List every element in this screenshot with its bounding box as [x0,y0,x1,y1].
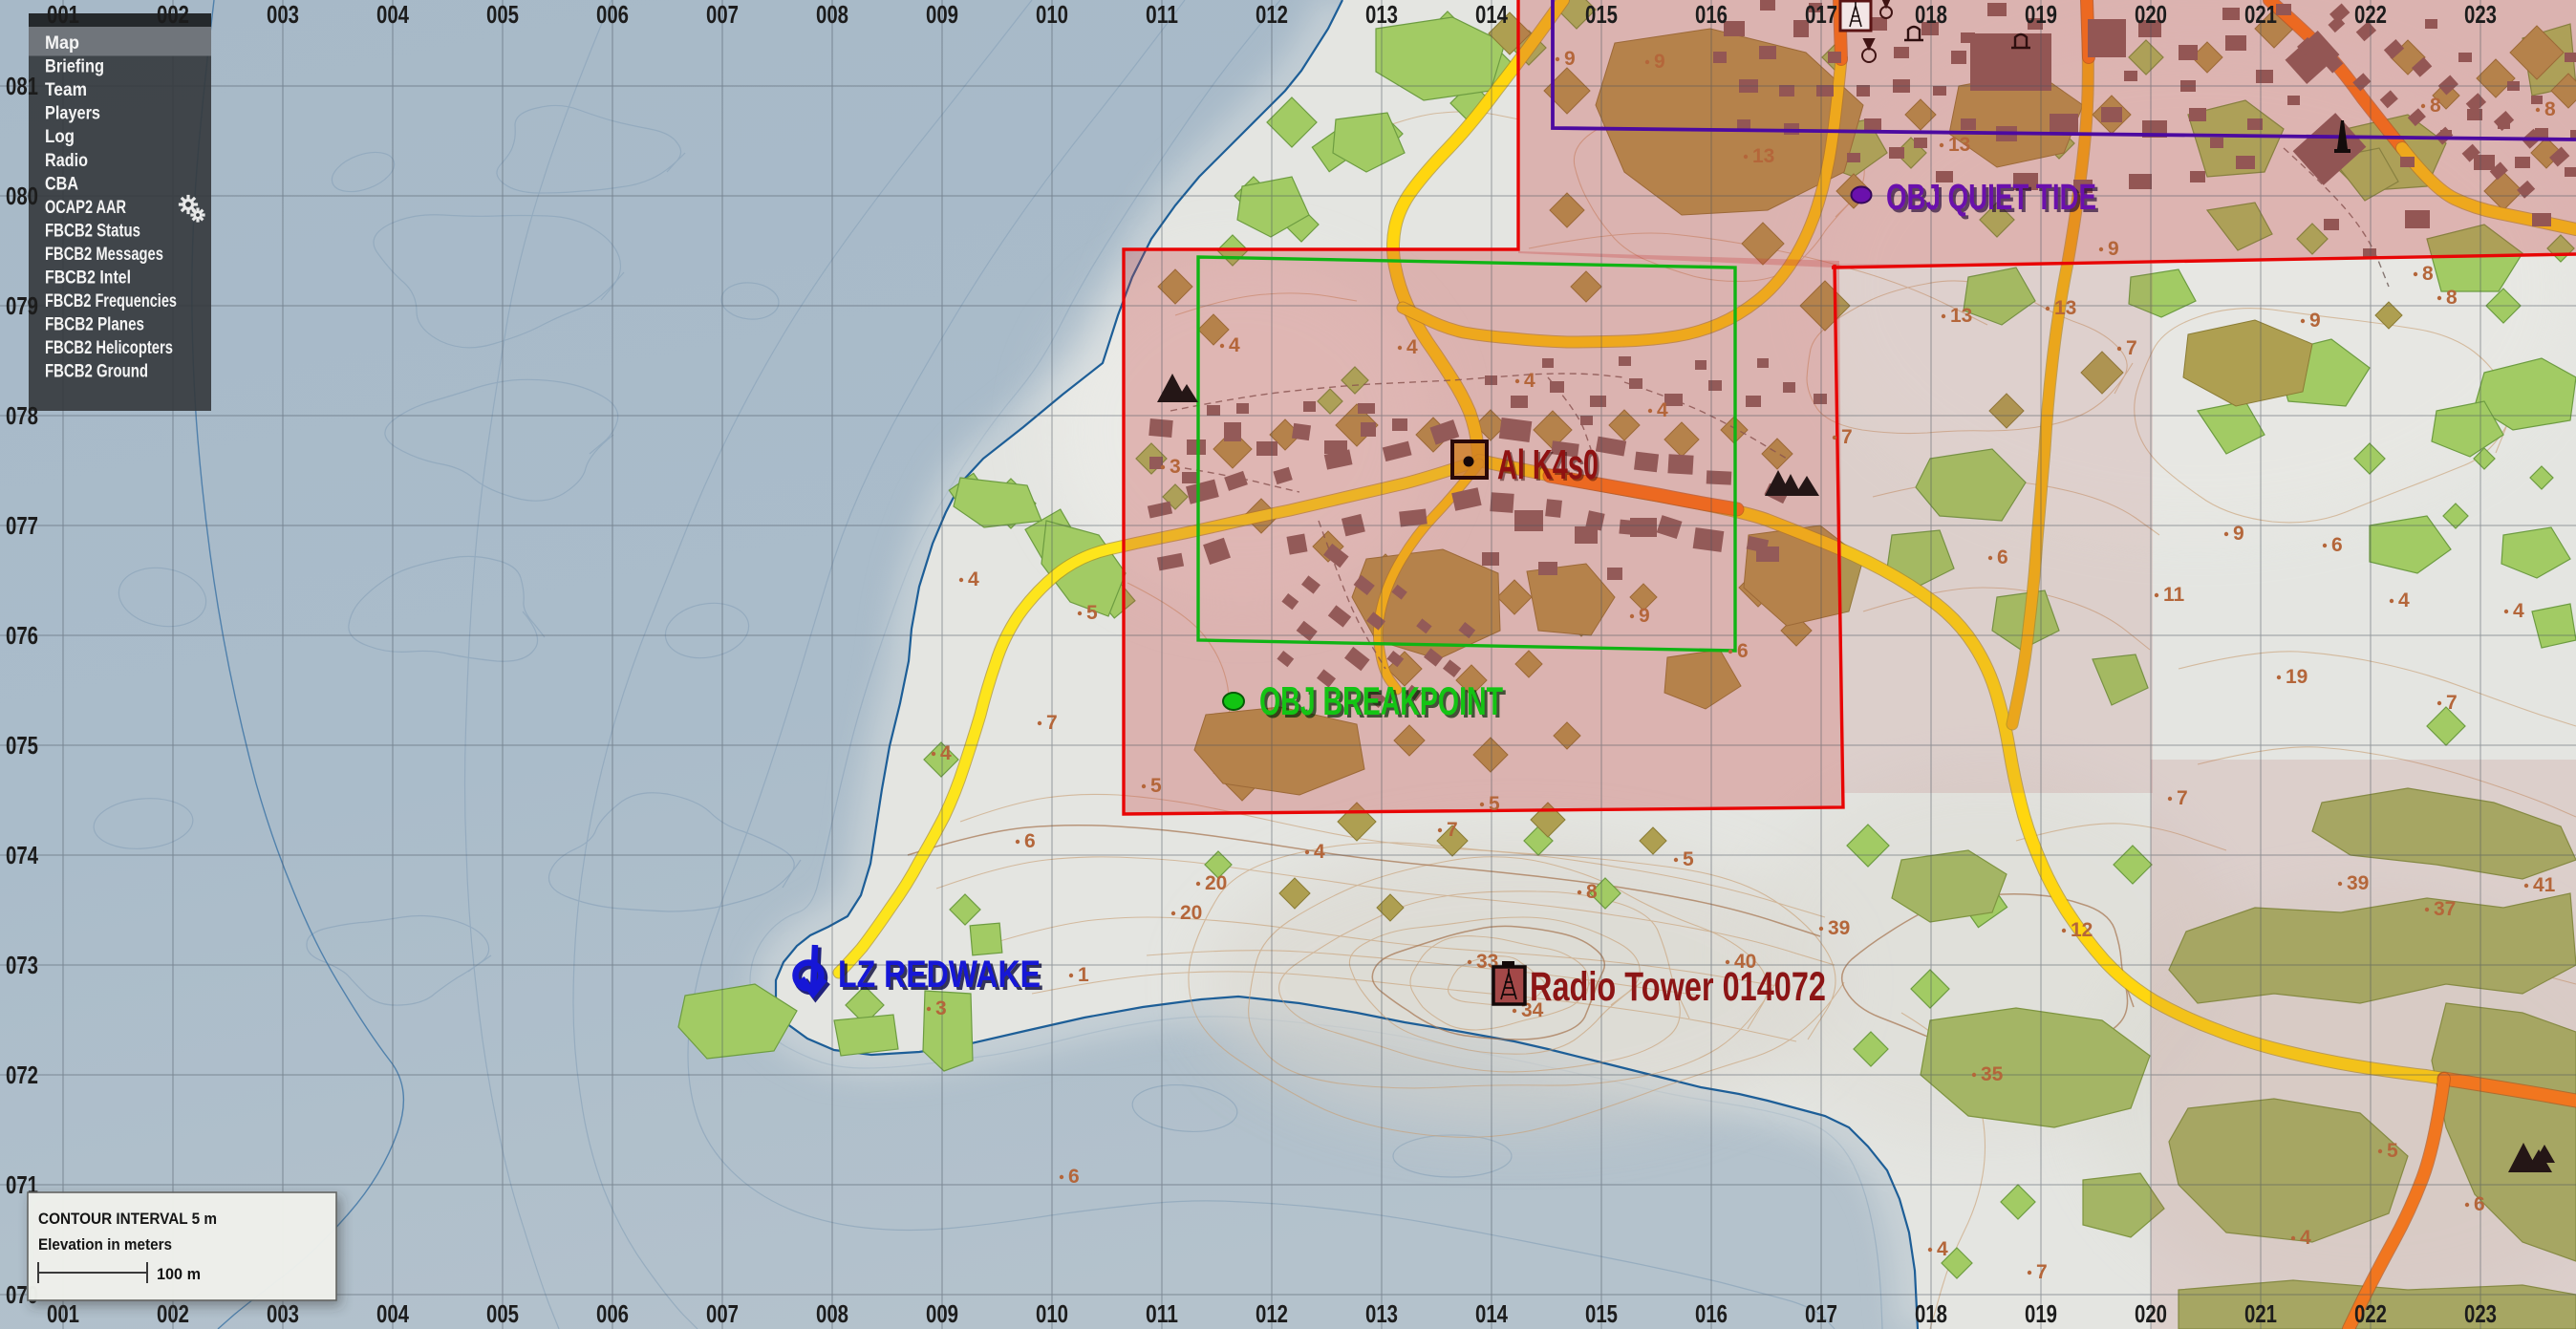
svg-text:Players: Players [45,103,100,124]
svg-text:010: 010 [1036,0,1068,29]
svg-text:004: 004 [376,1299,409,1328]
svg-text:019: 019 [2025,0,2057,29]
svg-text:6: 6 [1737,640,1749,662]
svg-text:022: 022 [2354,1299,2387,1328]
svg-text:OCAP2 AAR: OCAP2 AAR [45,197,126,218]
svg-text:8: 8 [1586,881,1598,903]
svg-text:5: 5 [1086,602,1098,624]
svg-text:13: 13 [1950,305,1972,327]
svg-text:017: 017 [1805,0,1837,29]
svg-text:6: 6 [1024,830,1036,852]
svg-text:019: 019 [2025,1299,2057,1328]
svg-text:007: 007 [706,0,739,29]
svg-text:008: 008 [816,1299,848,1328]
svg-text:39: 39 [1828,917,1850,939]
svg-text:073: 073 [6,951,38,979]
svg-text:4: 4 [2300,1227,2311,1249]
svg-text:012: 012 [1256,1299,1288,1328]
svg-text:6: 6 [2331,534,2343,556]
svg-text:8: 8 [2430,95,2441,117]
svg-text:8: 8 [2422,263,2434,285]
svg-text:011: 011 [1146,1299,1178,1328]
svg-text:Team: Team [45,79,87,100]
svg-text:7: 7 [1447,819,1458,841]
svg-text:20: 20 [1180,902,1202,924]
svg-text:077: 077 [6,511,38,540]
svg-text:FBCB2 Status: FBCB2 Status [45,220,140,241]
svg-text:076: 076 [6,621,38,650]
svg-text:016: 016 [1695,0,1728,29]
svg-text:39: 39 [2347,872,2369,894]
svg-text:021: 021 [2244,0,2277,29]
svg-text:010: 010 [1036,1299,1068,1328]
svg-text:009: 009 [926,1299,958,1328]
svg-text:012: 012 [1256,0,1288,29]
svg-text:4: 4 [2513,600,2524,622]
svg-text:006: 006 [596,0,629,29]
svg-text:41: 41 [2533,874,2556,896]
svg-text:Log: Log [45,126,75,147]
svg-text:003: 003 [267,1299,299,1328]
svg-text:13: 13 [1752,145,1774,167]
svg-text:018: 018 [1915,1299,1947,1328]
svg-text:080: 080 [6,182,38,210]
svg-text:018: 018 [1915,0,1947,29]
svg-text:4: 4 [1314,841,1325,863]
svg-text:35: 35 [1981,1063,2004,1085]
svg-text:Al K4s0: Al K4s0 [1497,441,1599,488]
svg-text:008: 008 [816,0,848,29]
svg-text:FBCB2 Intel: FBCB2 Intel [45,268,131,289]
svg-text:4: 4 [1937,1238,1948,1260]
svg-text:020: 020 [2135,0,2167,29]
svg-text:6: 6 [1997,547,2008,568]
svg-text:Radio: Radio [45,150,88,171]
svg-text:001: 001 [47,1299,79,1328]
svg-text:5: 5 [2387,1140,2398,1162]
svg-text:9: 9 [1639,605,1650,627]
svg-text:4: 4 [940,742,952,764]
svg-text:6: 6 [2474,1193,2485,1215]
svg-text:9: 9 [1564,48,1576,70]
svg-text:007: 007 [706,1299,739,1328]
svg-text:Briefing: Briefing [45,56,104,77]
svg-text:4: 4 [1229,334,1240,356]
svg-text:6: 6 [1068,1166,1080,1188]
svg-text:081: 081 [6,72,38,100]
svg-text:078: 078 [6,401,38,430]
svg-text:9: 9 [2309,310,2321,332]
svg-text:12: 12 [2071,919,2093,941]
svg-text:4: 4 [1524,370,1535,392]
svg-text:013: 013 [1365,0,1398,29]
svg-text:011: 011 [1146,0,1178,29]
svg-text:20: 20 [1205,872,1227,894]
svg-text:FBCB2 Planes: FBCB2 Planes [45,314,144,335]
svg-text:7: 7 [2126,337,2137,359]
svg-text:9: 9 [2108,238,2119,260]
svg-text:OBJ BREAKPOINT: OBJ BREAKPOINT [1259,678,1503,723]
svg-text:Map: Map [45,32,79,54]
svg-text:FBCB2 Ground: FBCB2 Ground [45,361,148,382]
svg-text:4: 4 [968,568,979,590]
svg-text:7: 7 [1841,426,1853,448]
svg-text:014: 014 [1475,0,1508,29]
svg-text:3: 3 [935,997,947,1019]
svg-text:014: 014 [1475,1299,1508,1328]
svg-text:8: 8 [2544,98,2556,120]
svg-text:015: 015 [1585,1299,1618,1328]
svg-text:OBJ QUIET TIDE: OBJ QUIET TIDE [1886,178,2096,218]
svg-text:079: 079 [6,291,38,320]
svg-text:Radio Tower 014072: Radio Tower 014072 [1530,964,1826,1010]
svg-text:13: 13 [2054,297,2076,319]
svg-text:002: 002 [157,0,189,29]
svg-text:5: 5 [1683,848,1694,870]
svg-text:022: 022 [2354,0,2387,29]
svg-text:5: 5 [1150,775,1162,797]
svg-text:19: 19 [2286,666,2308,688]
svg-text:075: 075 [6,731,38,760]
svg-text:003: 003 [267,0,299,29]
svg-text:004: 004 [376,0,409,29]
svg-text:072: 072 [6,1061,38,1089]
svg-text:8: 8 [2446,287,2458,309]
svg-text:7: 7 [2446,692,2458,714]
svg-text:9: 9 [1654,51,1665,73]
svg-text:002: 002 [157,1299,189,1328]
svg-text:13: 13 [1948,134,1970,156]
svg-text:Elevation in meters: Elevation in meters [38,1235,172,1254]
svg-text:FBCB2 Frequencies: FBCB2 Frequencies [45,290,177,311]
svg-text:3: 3 [1170,456,1181,478]
svg-text:023: 023 [2464,0,2497,29]
svg-text:LZ REDWAKE: LZ REDWAKE [838,954,1041,996]
svg-text:CONTOUR INTERVAL 5 m: CONTOUR INTERVAL 5 m [38,1210,217,1228]
svg-text:016: 016 [1695,1299,1728,1328]
svg-text:FBCB2 Helicopters: FBCB2 Helicopters [45,337,173,358]
svg-text:100 m: 100 m [157,1265,201,1283]
svg-text:001: 001 [47,0,79,29]
svg-text:020: 020 [2135,1299,2167,1328]
svg-text:FBCB2 Messages: FBCB2 Messages [45,244,163,265]
svg-text:015: 015 [1585,0,1618,29]
svg-text:005: 005 [486,0,519,29]
svg-text:1: 1 [1078,964,1089,986]
svg-text:005: 005 [486,1299,519,1328]
svg-text:7: 7 [2177,787,2188,809]
svg-text:023: 023 [2464,1299,2497,1328]
svg-text:021: 021 [2244,1299,2277,1328]
svg-text:11: 11 [2163,584,2185,606]
svg-text:5: 5 [1489,793,1500,815]
svg-text:009: 009 [926,0,958,29]
svg-text:4: 4 [2398,589,2410,611]
svg-text:013: 013 [1365,1299,1398,1328]
svg-text:37: 37 [2434,898,2456,920]
svg-text:4: 4 [1657,399,1668,421]
svg-text:7: 7 [1046,712,1058,734]
svg-text:074: 074 [6,841,38,869]
svg-text:006: 006 [596,1299,629,1328]
svg-text:9: 9 [2233,523,2244,545]
svg-text:CBA: CBA [45,173,78,194]
svg-text:4: 4 [1406,336,1418,358]
svg-text:017: 017 [1805,1299,1837,1328]
svg-text:7: 7 [2036,1261,2048,1283]
